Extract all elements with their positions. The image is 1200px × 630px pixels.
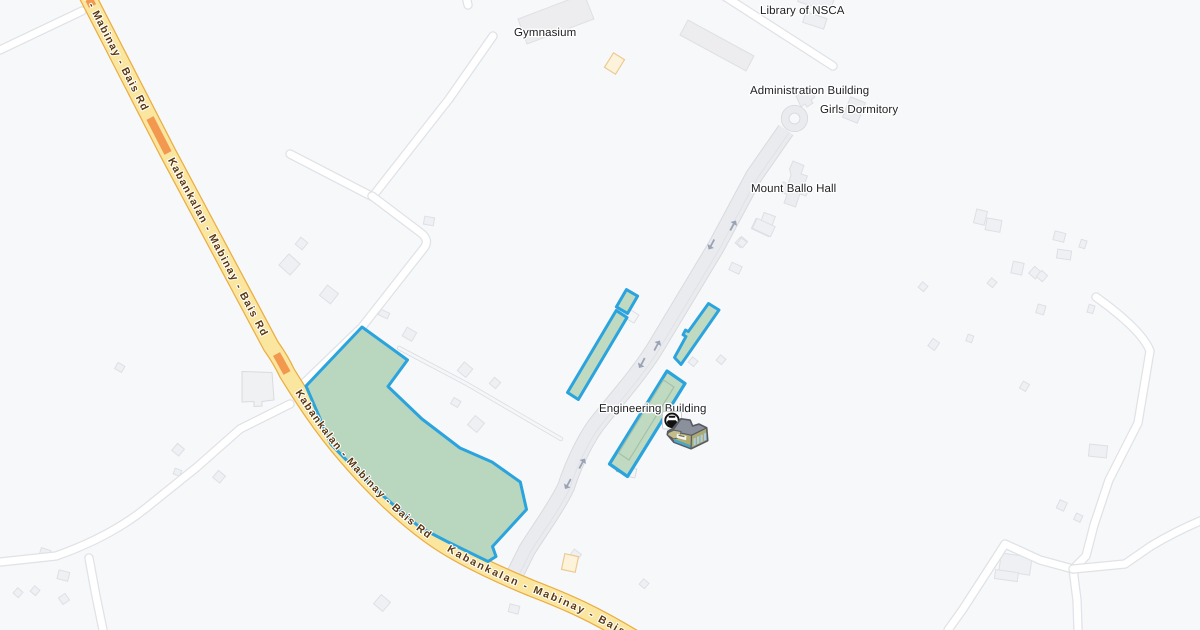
svg-text:Mount Ballo Hall: Mount Ballo Hall xyxy=(751,183,836,195)
svg-text:Girls Dormitory: Girls Dormitory xyxy=(820,104,898,116)
svg-text:Library of NSCA: Library of NSCA xyxy=(760,5,845,17)
svg-text:Administration Building: Administration Building xyxy=(750,85,869,97)
svg-text:Engineering Building: Engineering Building xyxy=(599,403,707,415)
svg-text:Gymnasium: Gymnasium xyxy=(514,27,576,39)
